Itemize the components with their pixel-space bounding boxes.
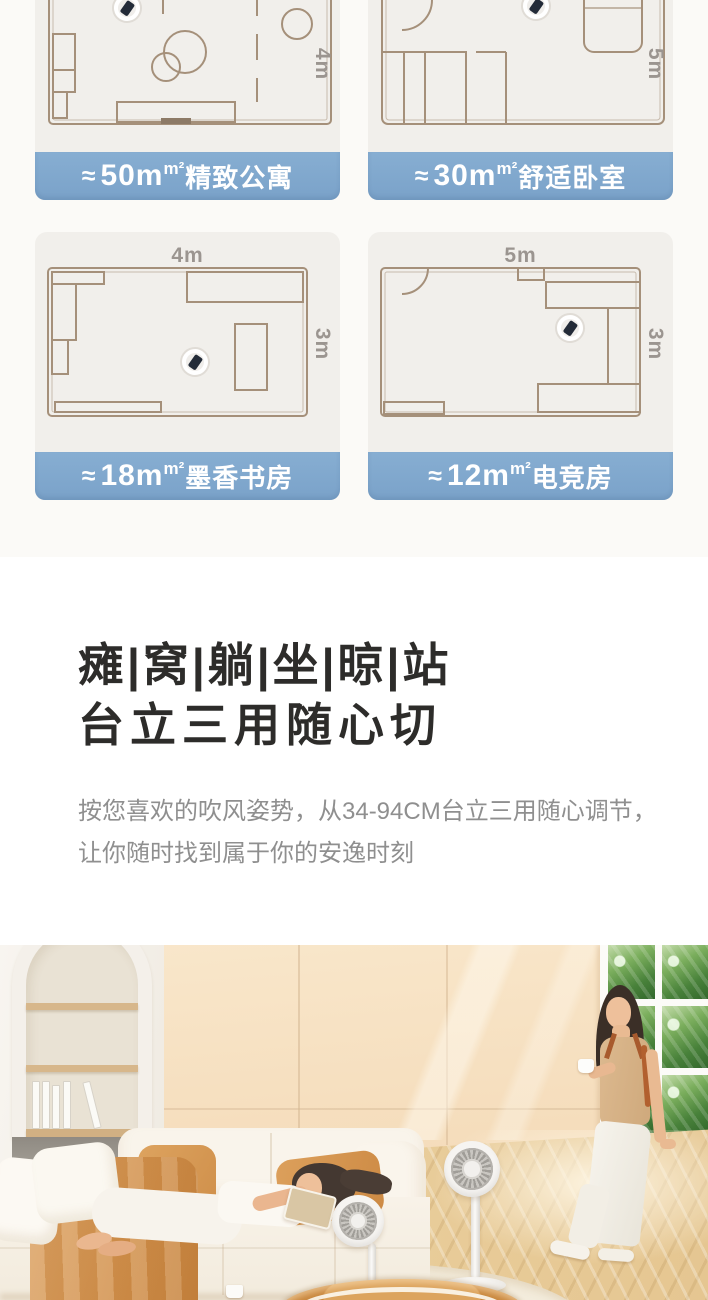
approx-symbol: ≈ xyxy=(415,162,429,191)
book xyxy=(42,1081,50,1129)
fan-head xyxy=(441,1138,503,1200)
wood-shelf xyxy=(26,1003,138,1010)
book xyxy=(63,1081,71,1129)
room-size-unit: m² xyxy=(163,159,184,179)
standing-woman-hand xyxy=(660,1139,676,1149)
room-depth-label: 4m xyxy=(310,48,334,80)
fan-pole xyxy=(471,1193,480,1279)
fan-pole xyxy=(368,1243,376,1285)
approx-symbol: ≈ xyxy=(82,162,96,191)
section-title: 瘫|窝|躺|坐|晾|站 台立三用随心切 xyxy=(78,635,708,755)
room-size-badge: ≈50mm²精致公寓 xyxy=(35,152,340,200)
section-title-line2: 台立三用随心切 xyxy=(78,695,708,755)
wood-shelf xyxy=(26,1065,138,1072)
room-size-value: 12m xyxy=(447,459,510,493)
room-cards-grid: 4m ≈50mm²精致公寓 xyxy=(35,0,673,500)
floor-plan-gaming: 5m 3m xyxy=(368,232,673,452)
floor-plan-apartment: 4m xyxy=(35,0,340,152)
standing-woman-face xyxy=(606,997,631,1028)
fan-marker-icon xyxy=(108,0,147,27)
room-name: 电竞房 xyxy=(532,458,613,495)
fan-marker-icon xyxy=(551,309,590,348)
standing-woman-sandal xyxy=(598,1248,635,1262)
window-pane xyxy=(662,1006,708,1068)
drink-cup xyxy=(578,1059,594,1073)
room-size-badge: ≈18mm²墨香书房 xyxy=(35,452,340,500)
window-pane xyxy=(662,945,708,999)
room-size-badge: ≈12mm²电竞房 xyxy=(368,452,673,500)
section-description: 按您喜欢的吹风姿势，从34-94CM台立三用随心调节， 让你随时找到属于你的安逸… xyxy=(0,791,708,875)
coffee-table-ring xyxy=(298,1287,506,1300)
room-card-study: 4m 3m ≈18mm²墨香书房 xyxy=(35,232,340,500)
room-depth-label: 3m xyxy=(643,328,667,360)
room-card-gaming: 5m 3m ≈12mm²电竞房 xyxy=(368,232,673,500)
room-depth-label: 3m xyxy=(310,328,334,360)
description-line1: 按您喜欢的吹风姿势，从34-94CM台立三用随心调节， xyxy=(78,791,708,833)
description-line2: 让你随时找到属于你的安逸时刻 xyxy=(78,833,708,875)
room-size-value: 30m xyxy=(433,159,496,193)
cup-on-floor xyxy=(226,1285,243,1298)
approx-symbol: ≈ xyxy=(82,462,96,491)
fan-marker-icon xyxy=(517,0,556,25)
room-size-unit: m² xyxy=(163,459,184,479)
room-name: 墨香书房 xyxy=(185,458,293,495)
room-size-value: 18m xyxy=(100,459,163,493)
fan-head xyxy=(329,1192,386,1249)
product-detail-page: 4m ≈50mm²精致公寓 xyxy=(0,0,708,1300)
book xyxy=(32,1081,40,1129)
floor-plan-drawing-icon xyxy=(368,0,673,152)
section-title-line1: 瘫|窝|躺|坐|晾|站 xyxy=(78,635,708,695)
window-pane xyxy=(662,1075,708,1133)
floor-plan-bedroom: 5m xyxy=(368,0,673,152)
floor-plan-study: 4m 3m xyxy=(35,232,340,452)
lifestyle-photo xyxy=(0,945,708,1300)
room-name: 舒适卧室 xyxy=(518,158,626,195)
room-card-apartment: 4m ≈50mm²精致公寓 xyxy=(35,0,340,200)
room-size-badge: ≈30mm²舒适卧室 xyxy=(368,152,673,200)
room-width-label: 5m xyxy=(368,244,673,268)
room-name: 精致公寓 xyxy=(185,158,293,195)
floor-plan-drawing-icon xyxy=(35,0,340,152)
room-coverage-section: 4m ≈50mm²精致公寓 xyxy=(0,0,708,557)
room-size-value: 50m xyxy=(100,159,163,193)
fan-marker-icon xyxy=(176,343,215,382)
room-width-label: 4m xyxy=(35,244,340,268)
room-card-bedroom: 5m ≈30mm²舒适卧室 xyxy=(368,0,673,200)
room-size-unit: m² xyxy=(510,459,531,479)
headline-section: 瘫|窝|躺|坐|晾|站 台立三用随心切 按您喜欢的吹风姿势，从34-94CM台立… xyxy=(0,557,708,875)
book xyxy=(52,1085,60,1129)
approx-symbol: ≈ xyxy=(428,462,442,491)
room-depth-label: 5m xyxy=(643,48,667,80)
room-size-unit: m² xyxy=(496,159,517,179)
pedestal-fan xyxy=(440,1141,510,1299)
